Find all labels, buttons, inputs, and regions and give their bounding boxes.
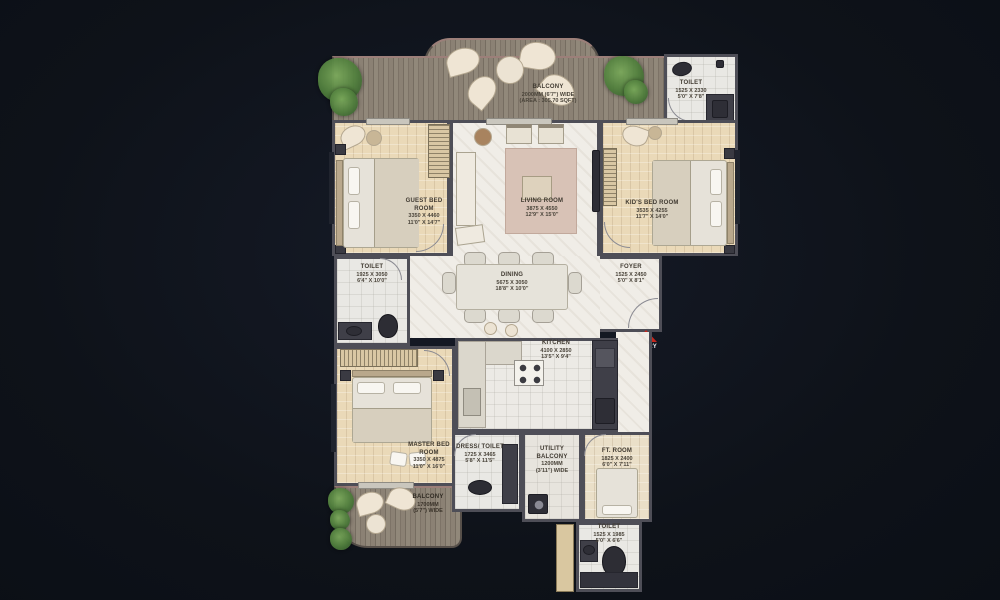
washbasin-icon: [346, 326, 362, 336]
balcony-door-opening: [626, 118, 678, 125]
corridor: [616, 332, 652, 436]
stove-icon: [514, 360, 544, 386]
blanket: [374, 159, 419, 247]
nightstand: [335, 144, 346, 155]
blanket: [653, 161, 691, 245]
oven-icon: [595, 348, 615, 368]
plant-icon: [330, 528, 352, 550]
pillow: [357, 382, 385, 394]
coffee-table: [522, 176, 552, 200]
wardrobe: [603, 148, 617, 206]
kids-bed: [652, 160, 727, 246]
pillow: [348, 167, 360, 195]
pouf: [505, 324, 518, 337]
balcony-door-opening: [366, 118, 410, 125]
dining-table: [456, 264, 568, 310]
dining-chair: [464, 308, 486, 323]
pillow: [393, 382, 421, 394]
bed-headboard: [352, 370, 432, 377]
deck-table: [366, 514, 386, 534]
blanket: [353, 408, 431, 442]
bench-seat: [408, 451, 426, 467]
shower-icon: [580, 572, 638, 588]
bed-headboard: [727, 162, 734, 244]
plant-icon: [330, 510, 350, 530]
washbasin-icon: [583, 545, 595, 555]
sectional-sofa: [456, 152, 476, 226]
dining-chair: [568, 272, 582, 294]
nightstand: [724, 245, 735, 254]
fridge-icon: [595, 398, 615, 424]
dining-chair: [442, 272, 456, 294]
wc-icon: [378, 314, 398, 338]
plant-icon: [624, 80, 648, 104]
pillow: [348, 201, 360, 229]
wardrobe: [340, 349, 418, 367]
single-bed: [596, 468, 638, 518]
chaise: [455, 224, 485, 246]
deck-table: [496, 56, 524, 84]
guest-bed: [343, 158, 419, 248]
floor-plan-canvas: BALCONY 2000MM (6'7") WIDE (AREA : 305.7…: [0, 0, 1000, 600]
nightstand: [724, 148, 735, 159]
dining-chair: [498, 308, 520, 323]
wardrobe: [428, 124, 450, 178]
window: [329, 152, 334, 224]
nightstand: [340, 370, 351, 381]
dining-chair: [532, 308, 554, 323]
window: [735, 150, 740, 224]
tv-unit: [592, 150, 600, 212]
dress-counter: [502, 444, 518, 504]
sofa: [538, 124, 564, 144]
side-table: [366, 130, 382, 146]
sofa: [506, 124, 532, 144]
pillow: [710, 201, 722, 227]
pillow: [710, 169, 722, 195]
window: [331, 384, 336, 452]
bench-seat: [389, 451, 408, 467]
pouf: [474, 128, 492, 146]
side-table: [648, 126, 662, 140]
pillow: [602, 505, 632, 515]
bed-headboard: [336, 160, 343, 246]
shower-tray-icon: [712, 100, 728, 118]
washbasin-icon: [468, 480, 492, 495]
sink-icon: [716, 60, 724, 68]
service-shaft: [556, 524, 574, 592]
washing-machine-icon: [528, 494, 548, 514]
pouf: [484, 322, 497, 335]
master-bed: [352, 377, 432, 443]
kitchen-sink: [463, 388, 481, 416]
plant-icon: [330, 88, 358, 116]
